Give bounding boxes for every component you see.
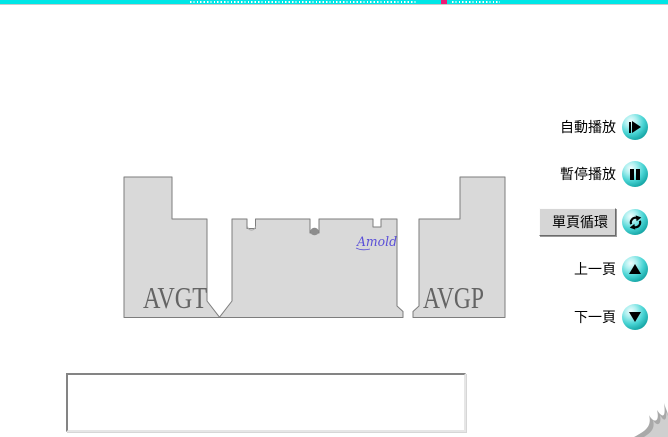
pause-icon xyxy=(630,169,640,180)
loop-icon xyxy=(628,215,643,230)
play-icon xyxy=(629,121,642,133)
control-next-page[interactable]: 下一頁 xyxy=(536,303,648,331)
control-autoplay[interactable]: 自動播放 xyxy=(536,113,648,141)
control-previous-page[interactable]: 上一頁 xyxy=(536,255,648,283)
pin-tip xyxy=(310,228,318,236)
pause-label: 暫停播放 xyxy=(560,164,616,184)
previous-page-button[interactable] xyxy=(622,256,648,282)
plate-label-left: AVGT xyxy=(143,280,207,315)
pause-button[interactable] xyxy=(622,161,648,187)
next-page-label: 下一頁 xyxy=(574,307,616,327)
single-page-loop-label: 單頁循環 xyxy=(539,208,616,236)
next-page-button[interactable] xyxy=(622,304,648,330)
caption-box xyxy=(66,373,466,432)
control-single-page-loop[interactable]: 單頁循環 xyxy=(536,208,648,236)
brand-signature: Amold xyxy=(356,235,397,250)
down-icon xyxy=(629,312,641,322)
control-pause[interactable]: 暫停播放 xyxy=(536,160,648,188)
tutorial-player-stage: AVGT AVGP Amold 自動播放 暫停播放 單頁循環 xyxy=(0,0,668,437)
autoplay-label: 自動播放 xyxy=(560,117,616,137)
previous-page-label: 上一頁 xyxy=(574,259,616,279)
single-page-loop-button[interactable] xyxy=(622,209,648,235)
up-icon xyxy=(629,264,641,274)
autoplay-button[interactable] xyxy=(622,114,648,140)
plate-label-right: AVGP xyxy=(423,280,484,315)
